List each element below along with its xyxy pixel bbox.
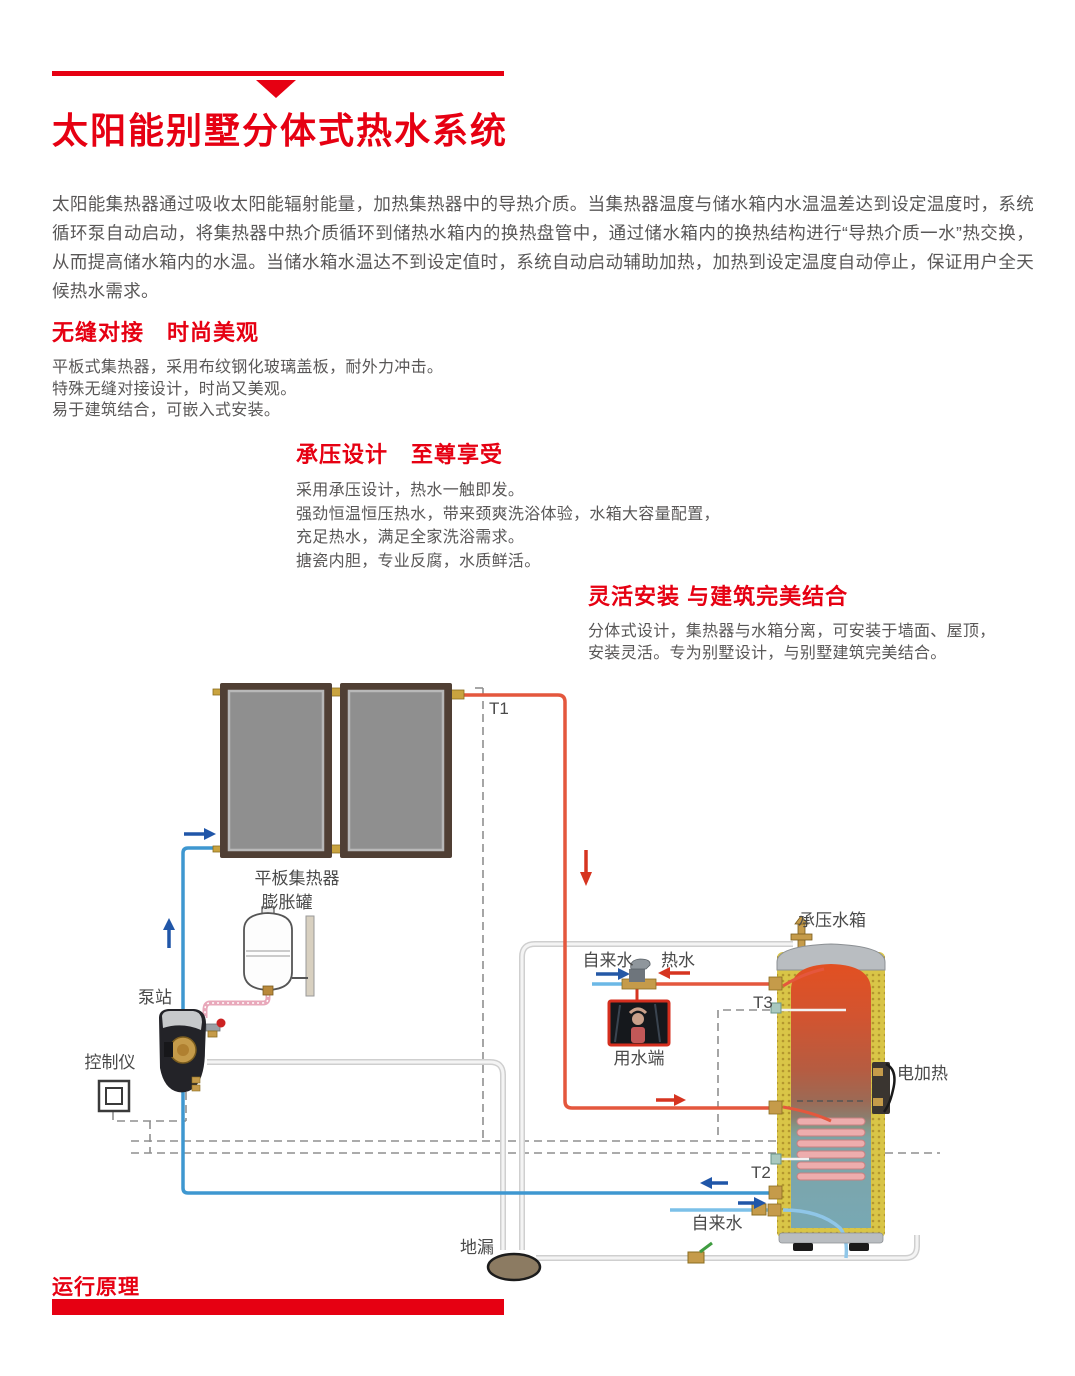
label-electric-heater: 电加热 [897, 1064, 948, 1083]
section-flexible: 灵活安装 与建筑完美结合 分体式设计，集热器与水箱分离，可安装于墙面、屋顶， 安… [588, 579, 996, 665]
label-pressure-tank: 承压水箱 [798, 911, 866, 930]
section-pressure: 承压设计 至尊享受 采用承压设计，热水一触即发。 强劲恒温恒压热水，带来颈爽洗浴… [296, 437, 720, 573]
flat-plate-collectors [213, 683, 464, 858]
section-flexible-heading: 灵活安装 与建筑完美结合 [588, 579, 996, 611]
section-pressure-line: 搪瓷内胆，专业反腐，水质鲜活。 [296, 550, 720, 574]
brochure-page: 太阳能别墅分体式热水系统 太阳能集热器通过吸收太阳能辐射能量，加热集热器中的导热… [0, 0, 1075, 1376]
label-water-outlet: 用水端 [614, 1049, 665, 1068]
intro-paragraph: 太阳能集热器通过吸收太阳能辐射能量，加热集热器中的导热介质。当集热器温度与储水箱… [52, 190, 1034, 306]
label-floor-drain: 地漏 [460, 1238, 494, 1257]
label-sensor-t2: T2 [751, 1163, 771, 1182]
controller-box [99, 1081, 129, 1111]
section-seamless-line: 平板式集热器，采用布纹钢化玻璃盖板，耐外力冲击。 [52, 357, 443, 379]
section-seamless-line: 特殊无缝对接设计，时尚又美观。 [52, 379, 443, 401]
label-tap-water-top: 自来水 [583, 951, 634, 970]
label-controller: 控制仪 [85, 1053, 136, 1072]
floor-drain [488, 1254, 540, 1280]
label-hot-water: 热水 [661, 951, 695, 970]
section-pressure-line: 强劲恒温恒压热水，带来颈爽洗浴体验，水箱大容量配置， [296, 503, 720, 527]
flow-arrow-up-pump [163, 918, 175, 948]
red-triangle-pointer [256, 80, 296, 98]
sensor-t2-probe [771, 1154, 781, 1164]
section-pressure-heading: 承压设计 至尊享受 [296, 437, 720, 469]
label-expansion-tank: 膨胀罐 [262, 893, 313, 912]
expansion-pipe [205, 990, 268, 1018]
expansion-tank [244, 907, 314, 996]
flow-arrow-to-coil [656, 1094, 686, 1106]
shower-photo [609, 1001, 669, 1045]
flow-arrow-to-collector [184, 828, 216, 840]
collector-panel-right [340, 683, 452, 858]
label-pump-station: 泵站 [138, 988, 172, 1007]
label-tap-water-bottom: 自来水 [692, 1214, 743, 1233]
label-sensor-t1: T1 [489, 699, 509, 718]
footer-red-bar [52, 1299, 504, 1315]
pressure-water-tank [768, 916, 894, 1258]
flow-arrow-return-left [700, 1177, 728, 1189]
flow-arrow-solar-down [580, 850, 592, 886]
section-seamless-line: 易于建筑结合，可嵌入式安装。 [52, 400, 443, 422]
electric-heater [872, 1062, 894, 1114]
label-collector: 平板集热器 [255, 869, 340, 888]
page-title: 太阳能别墅分体式热水系统 [52, 102, 508, 154]
top-red-rule [52, 71, 504, 76]
pump-station [159, 1009, 226, 1092]
flow-arrows [163, 828, 766, 1209]
section-flexible-line: 分体式设计，集热器与水箱分离，可安装于墙面、屋顶， [588, 621, 996, 643]
section-pressure-line: 采用承压设计，热水一触即发。 [296, 479, 720, 503]
section-seamless: 无缝对接 时尚美观 平板式集热器，采用布纹钢化玻璃盖板，耐外力冲击。 特殊无缝对… [52, 315, 443, 422]
collector-panel-left [220, 683, 332, 858]
label-sensor-t3: T3 [753, 993, 773, 1012]
section-seamless-heading: 无缝对接 时尚美观 [52, 315, 443, 347]
system-diagram: 平板集热器 膨胀罐 泵站 控制仪 T1 自来水 热水 用水端 T3 承压水箱 电… [0, 660, 1075, 1300]
section-pressure-line: 充足热水，满足全家洗浴需求。 [296, 526, 720, 550]
footer-heading: 运行原理 [52, 1271, 140, 1301]
